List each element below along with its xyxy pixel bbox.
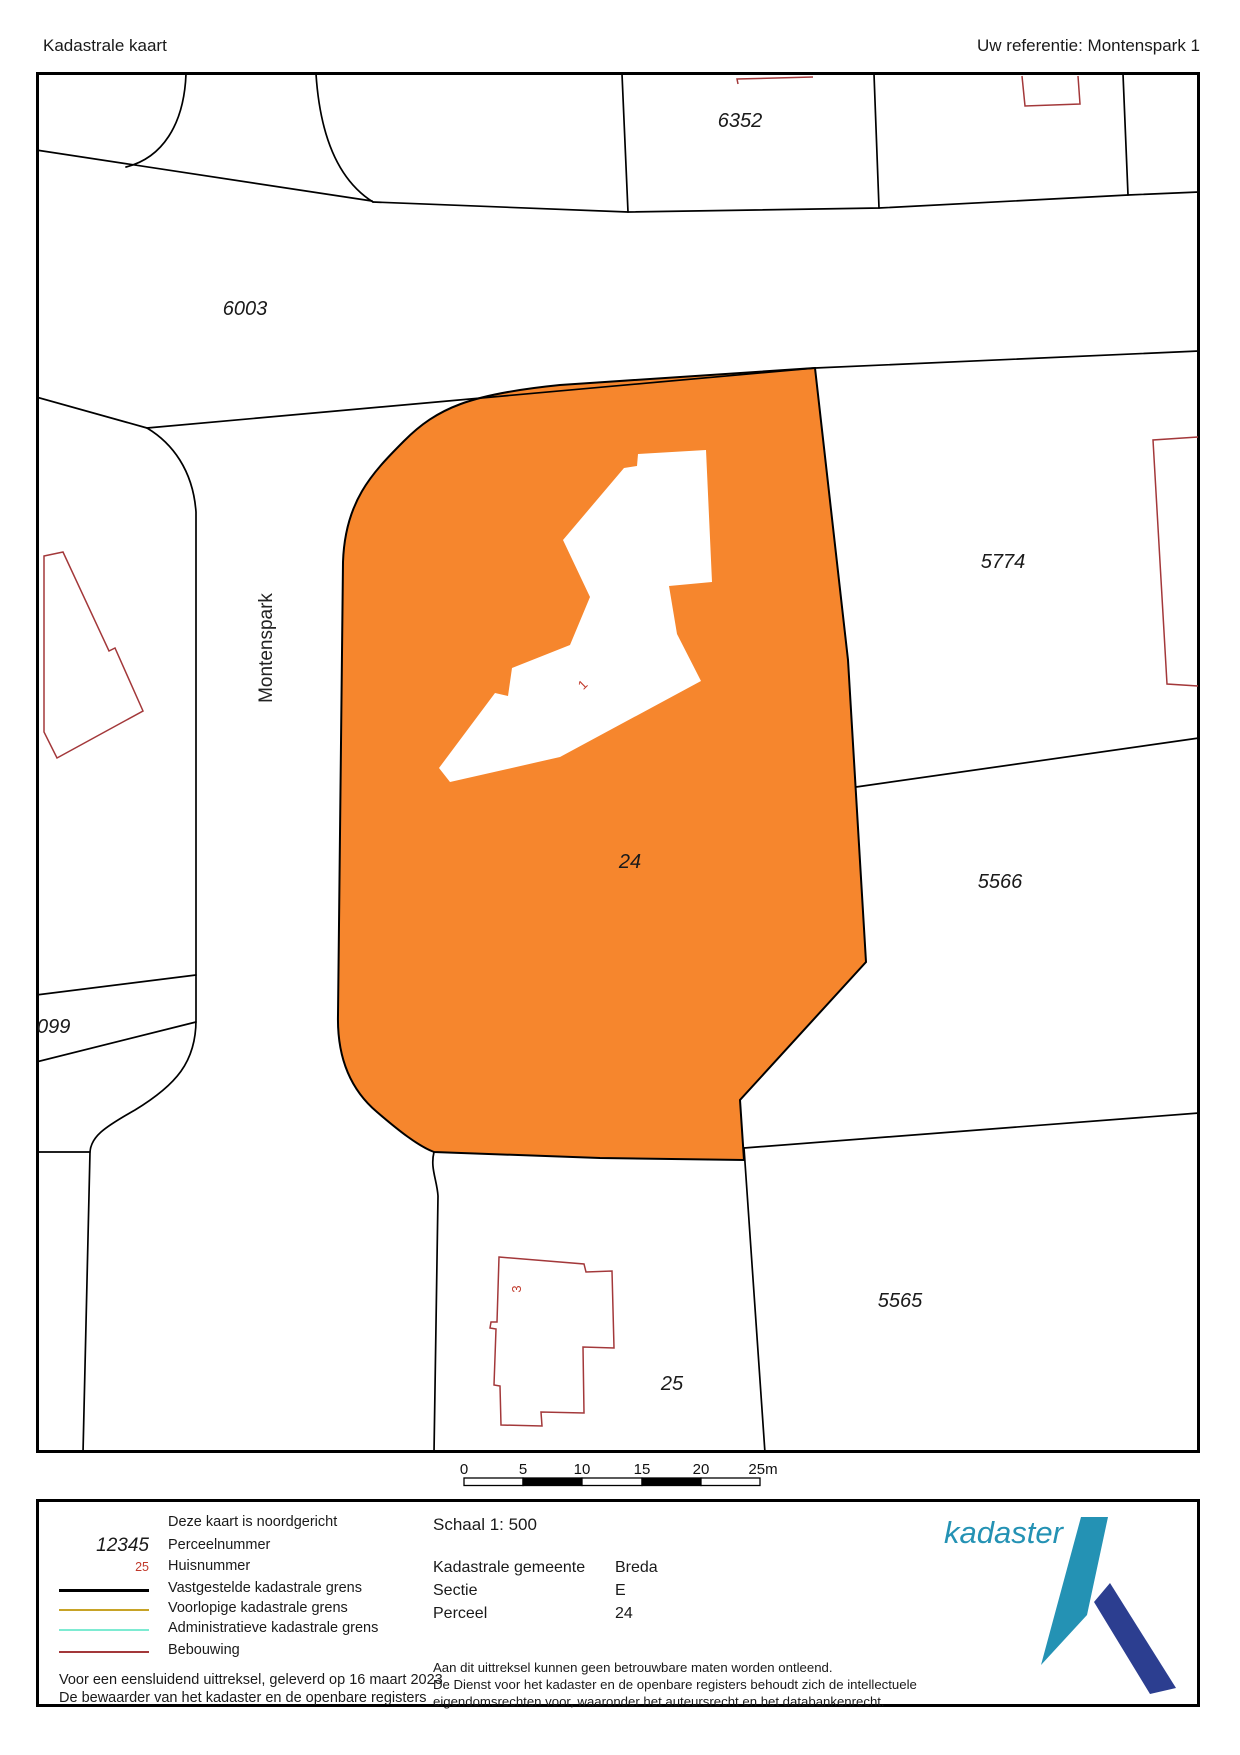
footnote-line-1: Voor een eensluidend uittreksel, gelever…	[59, 1672, 443, 1688]
north-note: Deze kaart is noordgericht	[168, 1514, 337, 1530]
legend-label-huisnummer: Huisnummer	[168, 1558, 250, 1574]
legend-label-vastgesteld: Vastgestelde kadastrale grens	[168, 1580, 362, 1596]
scale-segment	[701, 1478, 760, 1486]
field-perceel: Perceel24	[433, 1605, 633, 1623]
disclaimer-line-2: De Dienst voor het kadaster en de openba…	[433, 1676, 917, 1693]
scale-text: Schaal 1: 500	[433, 1515, 537, 1535]
parcel-label-5774: 5774	[981, 551, 1026, 573]
parcel-label-6003: 6003	[223, 298, 268, 320]
kadaster-logo-icon	[1034, 1510, 1179, 1704]
house-number-3: 3	[509, 1285, 524, 1292]
field-sectie: SectieE	[433, 1582, 626, 1600]
footnote-line-2: De bewaarder van het kadaster en de open…	[59, 1690, 427, 1706]
parcel-label-5565: 5565	[878, 1290, 923, 1312]
parcel-label-5566: 5566	[978, 871, 1023, 893]
footer-box: Deze kaart is noordgericht 12345 Perceel…	[36, 1499, 1200, 1707]
legend-label-administratief: Administratieve kadastrale grens	[168, 1620, 378, 1636]
legend-label-voorlopig: Voorlopige kadastrale grens	[168, 1600, 348, 1616]
selected-parcel-24	[338, 368, 866, 1160]
street-label-montenspark: Montenspark	[256, 593, 277, 703]
cadastral-map: 6352 6003 5774 5566 5565 25 24 099 Monte…	[36, 72, 1200, 1453]
scale-tick-25m: 25m	[748, 1461, 777, 1478]
kadastrale-kaart-page: Kadastrale kaart Uw referentie: Montensp…	[0, 0, 1240, 1755]
scale-tick-20: 20	[693, 1461, 710, 1478]
field-gemeente: Kadastrale gemeenteBreda	[433, 1559, 658, 1577]
legend-huisnummer-sample: 25	[59, 1560, 149, 1574]
disclaimer-line-3: eigendomsrechten voor, waaronder het aut…	[433, 1693, 917, 1710]
field-sectie-label: Sectie	[433, 1582, 615, 1600]
legend-parcelnumber-sample: 12345	[59, 1535, 149, 1557]
field-sectie-value: E	[615, 1582, 626, 1599]
disclaimer-line-1: Aan dit uittreksel kunnen geen betrouwba…	[433, 1659, 917, 1676]
field-gemeente-value: Breda	[615, 1559, 658, 1576]
parcel-label-099: 099	[37, 1016, 70, 1038]
field-perceel-label: Perceel	[433, 1605, 615, 1623]
legend-line-bebouwing	[59, 1651, 149, 1653]
legend-line-voorlopig	[59, 1609, 149, 1611]
reference-text: Uw referentie: Montenspark 1	[977, 36, 1200, 56]
legend-line-administratief	[59, 1629, 149, 1631]
legend-line-vastgesteld	[59, 1589, 149, 1592]
parcel-label-24: 24	[618, 851, 641, 873]
legend-label-perceelnummer: Perceelnummer	[168, 1537, 270, 1553]
field-perceel-value: 24	[615, 1605, 633, 1622]
scale-segment	[523, 1478, 582, 1486]
disclaimer: Aan dit uittreksel kunnen geen betrouwba…	[433, 1659, 917, 1711]
scale-segment	[582, 1478, 642, 1486]
parcel-label-25: 25	[660, 1373, 684, 1395]
scale-tick-10: 10	[574, 1461, 591, 1478]
field-gemeente-label: Kadastrale gemeente	[433, 1559, 615, 1577]
scale-tick-0: 0	[460, 1461, 468, 1478]
scale-segment	[642, 1478, 701, 1486]
scale-tick-5: 5	[519, 1461, 527, 1478]
scale-bar: 0 5 10 15 20 25m	[440, 1458, 800, 1492]
parcel-label-6352: 6352	[718, 110, 763, 132]
legend-label-bebouwing: Bebouwing	[168, 1642, 240, 1658]
scale-tick-15: 15	[634, 1461, 651, 1478]
scale-segment	[464, 1478, 523, 1486]
page-title: Kadastrale kaart	[43, 36, 167, 56]
